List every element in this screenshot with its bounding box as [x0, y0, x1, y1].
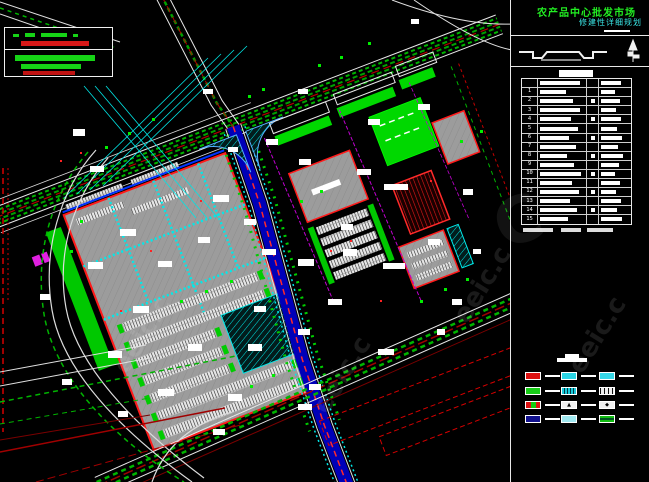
legend-green-solid-label	[545, 390, 560, 392]
table-row: 7	[522, 142, 631, 151]
drawing-title-panel: 农产品中心批发市场 修建性详细规划 123456789101112131415 …	[510, 0, 649, 482]
legend-green-stripe	[599, 415, 634, 423]
table-row: 8	[522, 151, 631, 160]
table-row: 3	[522, 105, 631, 114]
label-blob	[213, 429, 225, 435]
table-title-blob	[559, 70, 593, 77]
red-mark	[80, 152, 82, 154]
tree-dot	[248, 95, 251, 98]
tree-dot	[368, 42, 371, 45]
label-blob	[90, 166, 104, 172]
label-blob	[198, 237, 210, 243]
label-blob	[203, 89, 213, 94]
tree-dot	[460, 140, 463, 143]
label-blob	[40, 294, 50, 300]
label-blob	[62, 379, 72, 385]
scale-bar-green-1	[15, 55, 95, 61]
legend-symbol-dia: ◆	[599, 401, 634, 409]
label-blob	[418, 104, 430, 110]
legend-mixed-hatch	[525, 401, 560, 409]
scale-bar-red-top	[21, 41, 89, 46]
legend-red-solid-label	[545, 375, 560, 377]
label-blob	[309, 384, 321, 390]
tree-dot	[262, 88, 265, 91]
label-blob	[73, 129, 85, 136]
legend-symbol-dia-swatch: ◆	[599, 401, 615, 409]
northeast-ramp-roads	[392, 0, 512, 50]
legend-red-solid	[525, 372, 560, 380]
label-blob	[88, 262, 103, 269]
legend-cyan-solid-a-label	[581, 375, 596, 377]
tree-dot	[205, 290, 208, 293]
label-blob	[188, 344, 202, 351]
table-row: 6	[522, 133, 631, 142]
legend-cyan-pale	[561, 415, 596, 423]
legend-cyan-pale-label	[581, 418, 596, 420]
label-blob	[357, 169, 371, 175]
tree-dot	[300, 200, 303, 203]
scale-bar-green-2	[21, 64, 81, 69]
scale-box-divider	[5, 49, 112, 50]
label-blob	[266, 139, 278, 145]
label-blob	[244, 219, 256, 225]
red-mark	[150, 250, 152, 252]
legend-title-shape-base	[557, 358, 587, 362]
tree-dot	[320, 190, 323, 193]
table-row: 2	[522, 96, 631, 105]
tree-dot	[128, 132, 131, 135]
label-blob	[383, 263, 405, 269]
label-blob	[298, 259, 314, 266]
table-row: 11	[522, 178, 631, 187]
legend-navy-solid	[525, 415, 560, 423]
tree-dot	[180, 300, 183, 303]
red-mark	[200, 200, 202, 202]
legend-cyan-solid-b-swatch	[599, 372, 615, 380]
west-boundary-lines	[3, 168, 8, 432]
legend-cyan-solid-b	[599, 372, 634, 380]
tree-dot	[250, 385, 253, 388]
legend-green-stripe-label	[619, 418, 634, 420]
label-blob	[328, 299, 342, 305]
label-blob	[463, 189, 473, 195]
label-blob	[262, 249, 276, 255]
tree-dot	[80, 220, 83, 223]
tree-dot	[272, 374, 275, 377]
panel-divider-2	[511, 66, 649, 67]
table-footnote-3	[587, 228, 613, 232]
legend-cyan-pale-swatch	[561, 415, 577, 423]
table-row: 13	[522, 196, 631, 205]
table-row: 1	[522, 87, 631, 96]
legend-cyan-solid-b-label	[619, 375, 634, 377]
legend-navy-solid-label	[545, 418, 560, 420]
label-blob	[254, 306, 266, 312]
tree-dot	[105, 146, 108, 149]
table-row: 10	[522, 169, 631, 178]
red-mark	[380, 300, 382, 302]
scale-legend-box	[4, 27, 113, 77]
label-blob	[378, 349, 394, 355]
tree-dot	[230, 280, 233, 283]
red-mark	[60, 160, 62, 162]
scale-bar-red-bottom	[23, 71, 75, 75]
table-row: 4	[522, 114, 631, 123]
table-footnote-1	[523, 228, 553, 232]
legend-cyan-solid-a	[561, 372, 596, 380]
legend-symbol-tri-label	[581, 404, 596, 406]
label-blob	[158, 261, 172, 267]
label-blob	[108, 351, 122, 358]
table-row: 14	[522, 205, 631, 214]
label-blob	[213, 195, 229, 202]
legend-symbol-tri: ▲	[561, 401, 596, 409]
label-blob	[368, 119, 380, 125]
label-blob	[298, 329, 310, 335]
label-blob	[298, 89, 308, 94]
red-mark	[120, 310, 122, 312]
label-blob	[133, 306, 149, 313]
scale-heading-dash	[73, 34, 78, 37]
tree-dot	[340, 56, 343, 59]
label-blob	[411, 19, 419, 24]
table-row: 15	[522, 214, 631, 223]
legend-mixed-hatch-label	[545, 404, 560, 406]
red-hatched-building	[392, 170, 450, 234]
legend-cyan-hatch	[561, 387, 596, 395]
legend-white-ticks-label	[619, 390, 634, 392]
tree-dot	[420, 300, 423, 303]
economic-indicators-table: 123456789101112131415	[521, 78, 632, 225]
legend-green-solid	[525, 387, 560, 395]
label-blob	[452, 299, 462, 305]
scale-heading-mark	[13, 34, 19, 37]
red-mark	[250, 300, 252, 302]
label-blob	[158, 389, 174, 396]
legend-green-stripe-swatch	[599, 415, 615, 423]
table-row: 5	[522, 123, 631, 132]
tree-dot	[152, 118, 155, 121]
table-row: 12	[522, 187, 631, 196]
label-blob	[473, 249, 481, 254]
label-blob	[343, 249, 357, 256]
title-underline	[604, 30, 630, 32]
table-footnote-2	[561, 228, 581, 232]
legend-symbol-dia-label	[619, 404, 634, 406]
north-symbol	[628, 40, 639, 62]
label-blob	[298, 404, 312, 410]
table-header-row	[522, 79, 631, 87]
legend-cyan-solid-a-swatch	[561, 372, 577, 380]
label-blob	[437, 329, 445, 335]
scale-heading-figures	[41, 33, 67, 37]
tree-dot	[480, 130, 483, 133]
drawing-subtitle: 修建性详细规划	[579, 17, 642, 28]
legend-white-ticks	[599, 387, 634, 395]
table-row: 9	[522, 160, 631, 169]
tree-dot	[318, 64, 321, 67]
red-mark	[430, 180, 432, 182]
red-mark	[330, 250, 332, 252]
label-blob	[384, 184, 408, 190]
label-blob	[228, 394, 242, 401]
legend-green-solid-swatch	[525, 387, 541, 395]
label-blob	[299, 159, 311, 165]
label-blob	[228, 147, 238, 152]
road-section-diagram	[511, 36, 649, 66]
tree-dot	[466, 278, 469, 281]
legend-symbol-tri-swatch: ▲	[561, 401, 577, 409]
legend-cyan-hatch-swatch	[561, 387, 577, 395]
tree-dot	[70, 250, 73, 253]
scale-heading-text	[25, 33, 35, 37]
label-blob	[248, 344, 262, 351]
legend-mixed-hatch-swatch	[525, 401, 541, 409]
legend-white-ticks-swatch	[599, 387, 615, 395]
legend-navy-solid-swatch	[525, 415, 541, 423]
legend-cyan-hatch-label	[581, 390, 596, 392]
label-blob	[341, 224, 353, 230]
red-mark	[350, 240, 352, 242]
cad-site-plan-screenshot: 农产品中心批发市场 修建性详细规划 123456789101112131415 …	[0, 0, 649, 482]
label-blob	[118, 411, 128, 417]
tree-dot	[444, 288, 447, 291]
label-blob	[428, 239, 440, 245]
legend-red-solid-swatch	[525, 372, 541, 380]
label-blob	[120, 229, 136, 236]
